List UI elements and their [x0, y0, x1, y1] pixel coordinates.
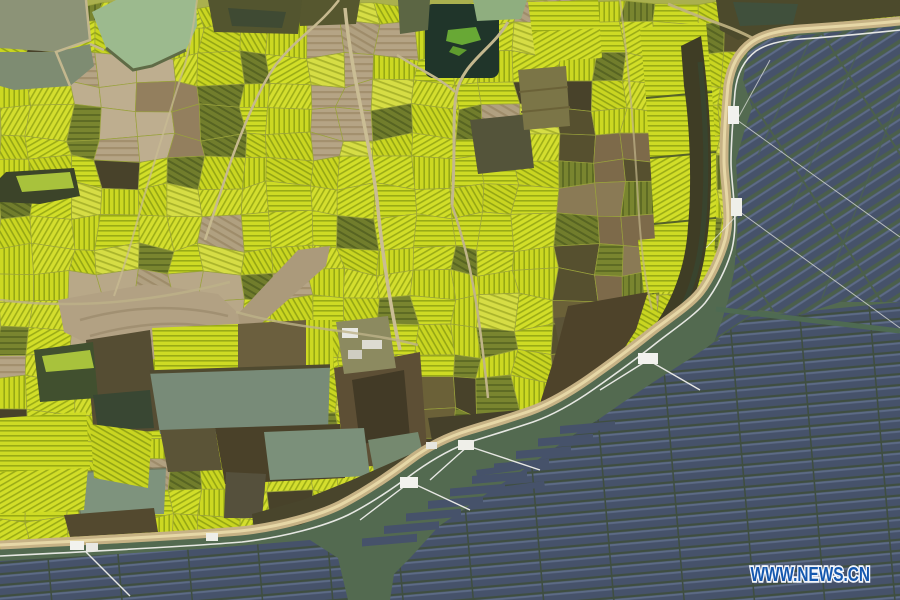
svg-text:WWW.NEWS.CN: WWW.NEWS.CN: [751, 563, 870, 586]
